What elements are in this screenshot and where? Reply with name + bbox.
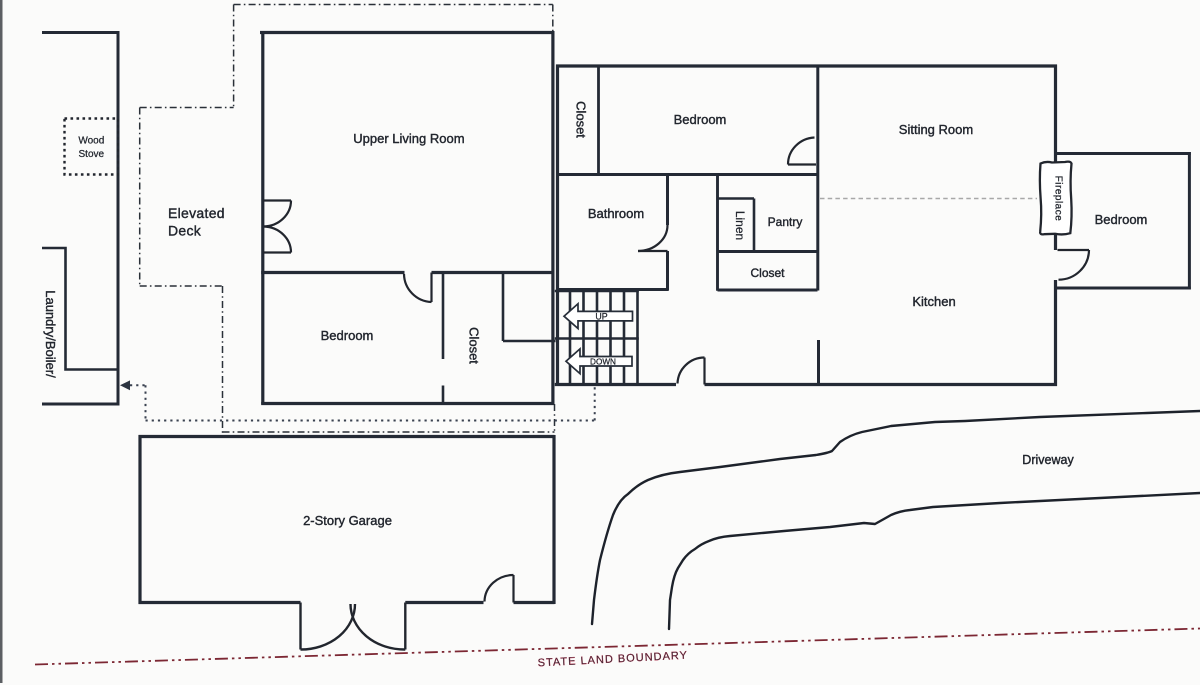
svg-text:Closet: Closet — [467, 327, 482, 364]
svg-text:Bathroom: Bathroom — [588, 206, 644, 221]
svg-text:Deck: Deck — [168, 223, 202, 239]
svg-text:Kitchen: Kitchen — [912, 294, 955, 309]
svg-text:Fireplace: Fireplace — [1053, 176, 1064, 222]
svg-text:Laundry/Boiler/: Laundry/Boiler/ — [43, 290, 58, 378]
svg-text:Bedroom: Bedroom — [321, 328, 374, 343]
svg-text:Closet: Closet — [574, 101, 589, 138]
svg-text:Upper Living Room: Upper Living Room — [353, 131, 464, 146]
svg-text:Linen: Linen — [733, 211, 747, 240]
svg-text:Driveway: Driveway — [1022, 453, 1074, 467]
svg-text:Stove: Stove — [79, 149, 105, 160]
svg-text:Sitting Room: Sitting Room — [899, 122, 973, 137]
svg-text:UP: UP — [595, 312, 607, 322]
svg-text:Bedroom: Bedroom — [1095, 212, 1148, 227]
svg-text:Closet: Closet — [750, 266, 785, 280]
svg-text:DOWN: DOWN — [590, 358, 616, 367]
svg-text:Elevated: Elevated — [168, 205, 225, 221]
svg-text:Bedroom: Bedroom — [674, 112, 727, 127]
svg-text:Pantry: Pantry — [768, 215, 803, 229]
svg-text:Wood: Wood — [78, 136, 104, 147]
svg-text:2-Story Garage: 2-Story Garage — [303, 513, 392, 528]
